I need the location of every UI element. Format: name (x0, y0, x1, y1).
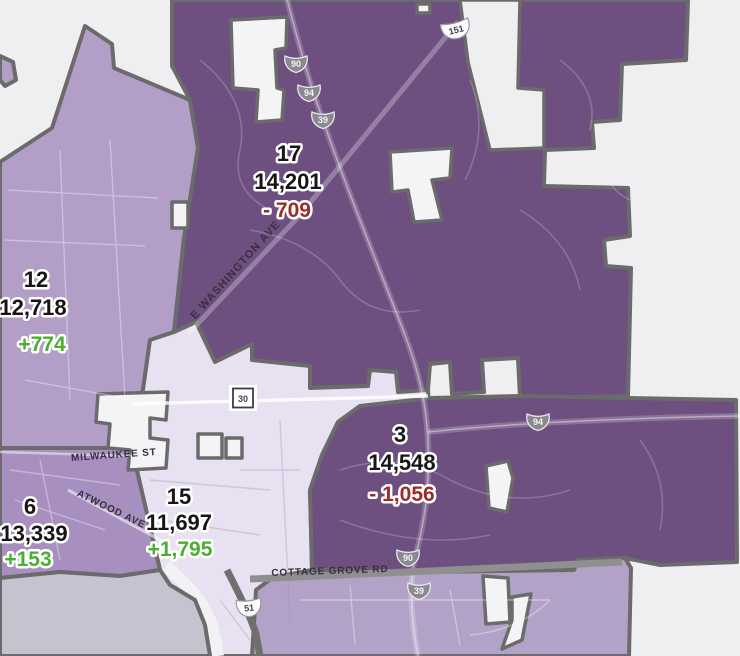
district-3-population: 14,548 (368, 450, 435, 475)
district-6-population: 13,339 (0, 521, 67, 546)
interstate-94-east-number: 94 (533, 417, 543, 427)
highway-30-shield: 30 (231, 387, 255, 409)
district-12-sliver[interactable] (0, 56, 16, 86)
us-51-number: 51 (244, 602, 255, 613)
interstate-90-south-number: 90 (403, 553, 413, 563)
map-viewport: 90 94 39 151 30 94 90 39 51 E WASHINGTON… (0, 0, 740, 656)
unincorporated-area-cutout (417, 4, 430, 13)
interstate-39-number: 39 (318, 115, 328, 125)
unincorporated-area-cutout (486, 461, 513, 512)
unincorporated-area-cutout (172, 202, 188, 228)
district-12-change: +774 (18, 333, 66, 356)
district-12-population: 12,718 (0, 295, 67, 320)
district-12-number: 12 (24, 267, 48, 292)
highway-30-number: 30 (238, 394, 248, 404)
district-17-population: 14,201 (254, 169, 321, 194)
district-15-number: 15 (167, 484, 191, 509)
district-6-number: 6 (24, 494, 36, 519)
district-map-canvas: 90 94 39 151 30 94 90 39 51 E WASHINGTON… (0, 0, 740, 656)
district-6-change: +153 (4, 548, 51, 571)
district-17-change: - 709 (263, 199, 311, 222)
interstate-90-number: 90 (291, 59, 301, 69)
interstate-39-south-number: 39 (414, 586, 424, 596)
district-15-population: 11,697 (146, 510, 212, 535)
district-17-number: 17 (277, 141, 301, 166)
district-15-change: +1,795 (148, 538, 213, 561)
unincorporated-area-cutout (226, 438, 242, 458)
unincorporated-area-cutout (198, 434, 222, 458)
interstate-94-number: 94 (304, 88, 314, 98)
district-3-change: - 1,056 (369, 483, 434, 506)
district-3-number: 3 (394, 422, 406, 447)
